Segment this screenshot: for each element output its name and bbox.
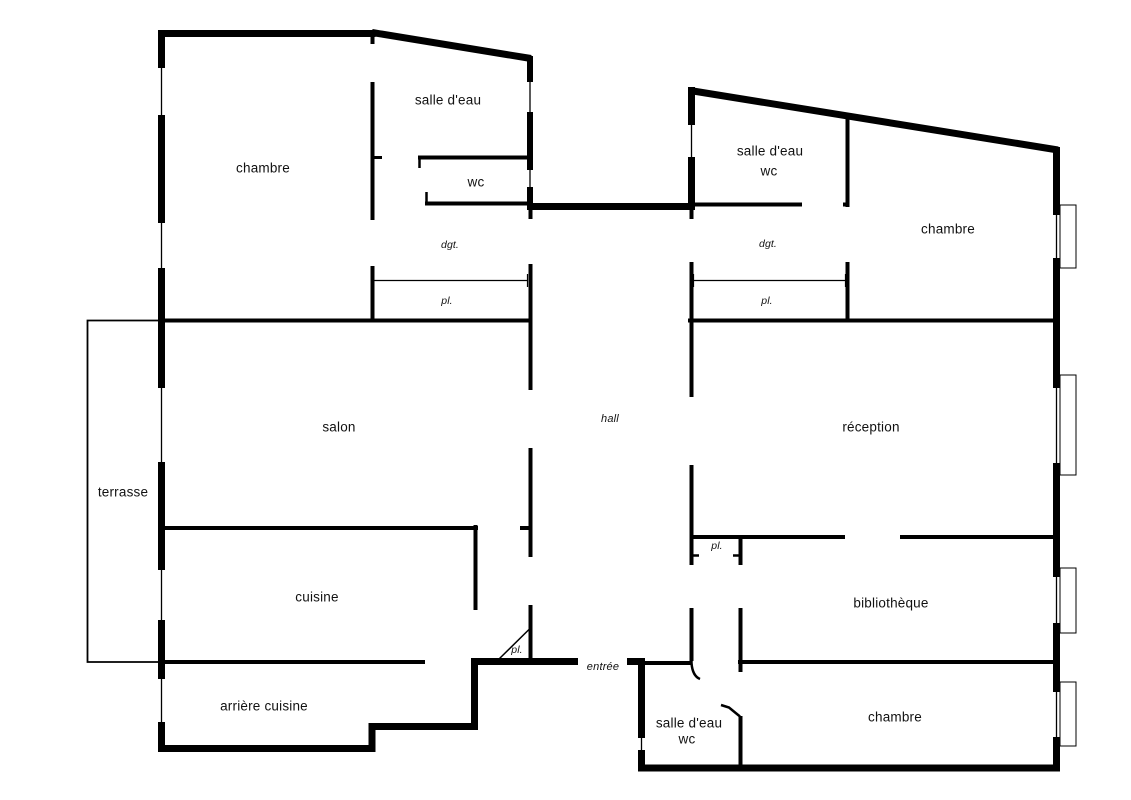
floorplan-canvas: chambre salle d'eau wc dgt. pl. salle d'… bbox=[0, 0, 1131, 800]
room-label-dgt-right: dgt. bbox=[759, 238, 777, 250]
bay-window-box bbox=[1060, 375, 1076, 475]
door-hook bbox=[692, 658, 701, 679]
room-label-salle-eau-nw: salle d'eau bbox=[415, 93, 481, 108]
bay-window-box bbox=[1060, 682, 1076, 746]
room-label-arriere-cuisine: arrière cuisine bbox=[220, 699, 308, 714]
room-label-pl-right: pl. bbox=[761, 295, 772, 307]
door-symbols bbox=[498, 630, 741, 717]
room-label-bibliotheque: bibliothèque bbox=[853, 596, 928, 611]
room-label-salle-eau-ne: salle d'eau bbox=[737, 144, 803, 159]
room-label-entree: entrée bbox=[587, 661, 619, 673]
door-leaf bbox=[721, 705, 740, 717]
room-label-chambre-ne: chambre bbox=[921, 222, 975, 237]
room-label-wc-s: wc bbox=[679, 732, 696, 747]
room-label-dgt-left: dgt. bbox=[441, 239, 459, 251]
measurement-lines bbox=[373, 274, 846, 287]
floor-plan-drawing bbox=[0, 0, 1131, 800]
room-label-reception: réception bbox=[842, 420, 899, 435]
room-label-terrasse: terrasse bbox=[98, 485, 148, 500]
room-label-chambre-se: chambre bbox=[868, 710, 922, 725]
windows bbox=[162, 68, 1077, 750]
room-label-chambre-nw: chambre bbox=[236, 161, 290, 176]
room-label-hall: hall bbox=[601, 413, 619, 425]
bay-window-box bbox=[1060, 205, 1076, 268]
room-label-pl-reception: pl. bbox=[711, 540, 722, 552]
room-label-wc-ne: wc bbox=[761, 164, 778, 179]
room-label-pl-hall: pl. bbox=[511, 644, 522, 656]
room-label-pl-left: pl. bbox=[441, 295, 452, 307]
bay-window-box bbox=[1060, 568, 1076, 633]
room-label-wc-nw: wc bbox=[468, 175, 485, 190]
room-label-salle-eau-s: salle d'eau bbox=[656, 716, 722, 731]
room-label-salon: salon bbox=[322, 420, 355, 435]
room-label-cuisine: cuisine bbox=[295, 590, 338, 605]
